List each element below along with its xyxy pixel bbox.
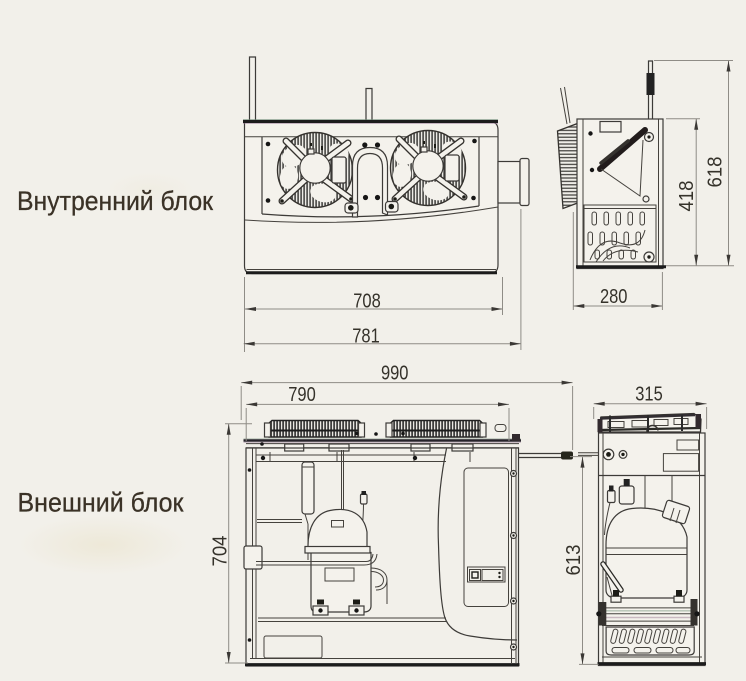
svg-text:704: 704 — [210, 536, 232, 567]
svg-text:Внутренний блок: Внутренний блок — [17, 186, 213, 216]
svg-text:790: 790 — [288, 384, 316, 406]
svg-text:315: 315 — [635, 383, 663, 405]
svg-text:418: 418 — [676, 181, 698, 212]
svg-text:280: 280 — [600, 286, 628, 308]
svg-text:990: 990 — [381, 363, 409, 385]
svg-text:781: 781 — [352, 325, 380, 347]
svg-text:618: 618 — [705, 157, 727, 188]
svg-text:Внешний блок: Внешний блок — [18, 488, 184, 518]
svg-text:613: 613 — [563, 545, 585, 576]
svg-text:708: 708 — [353, 290, 381, 312]
